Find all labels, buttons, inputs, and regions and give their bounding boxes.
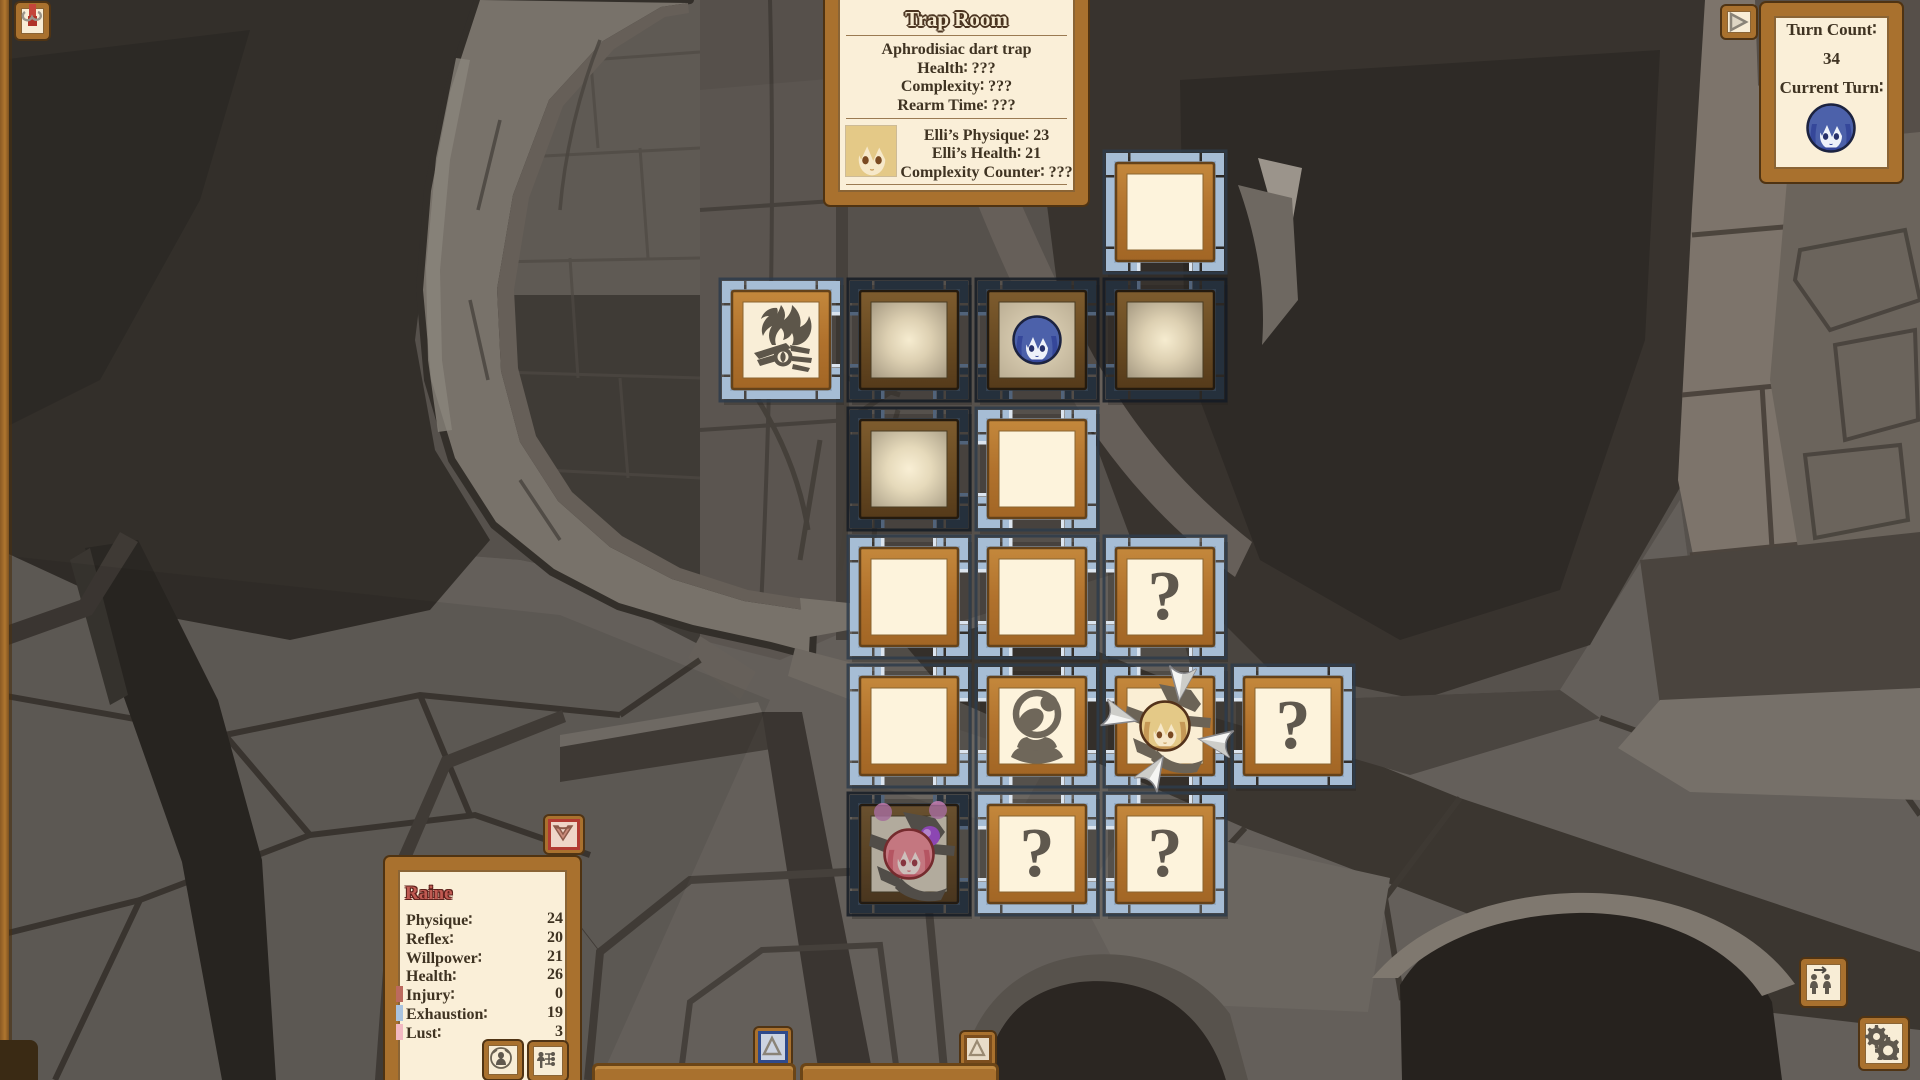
svg-text:?: ? — [1148, 815, 1183, 892]
svg-text:?: ? — [1276, 687, 1311, 764]
svg-text:?: ? — [1148, 558, 1183, 635]
svg-text:?: ? — [1020, 815, 1055, 892]
